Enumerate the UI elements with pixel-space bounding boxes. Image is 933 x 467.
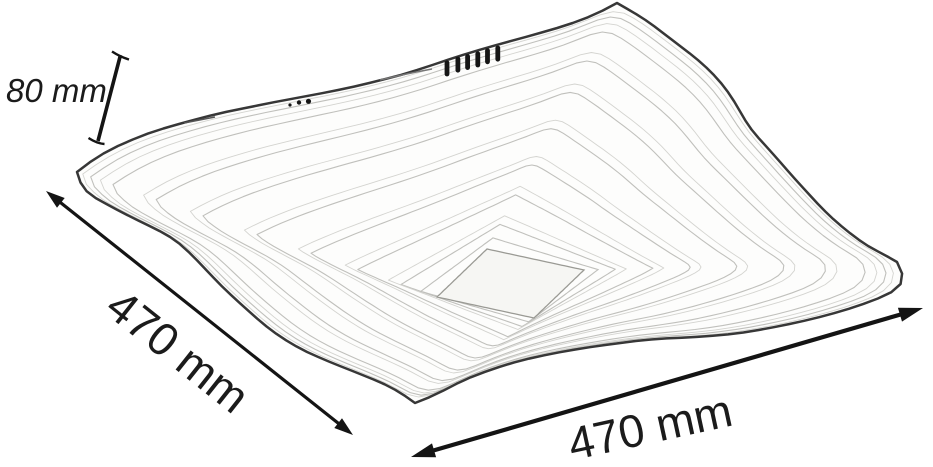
svg-text:80 mm: 80 mm [6,72,107,109]
